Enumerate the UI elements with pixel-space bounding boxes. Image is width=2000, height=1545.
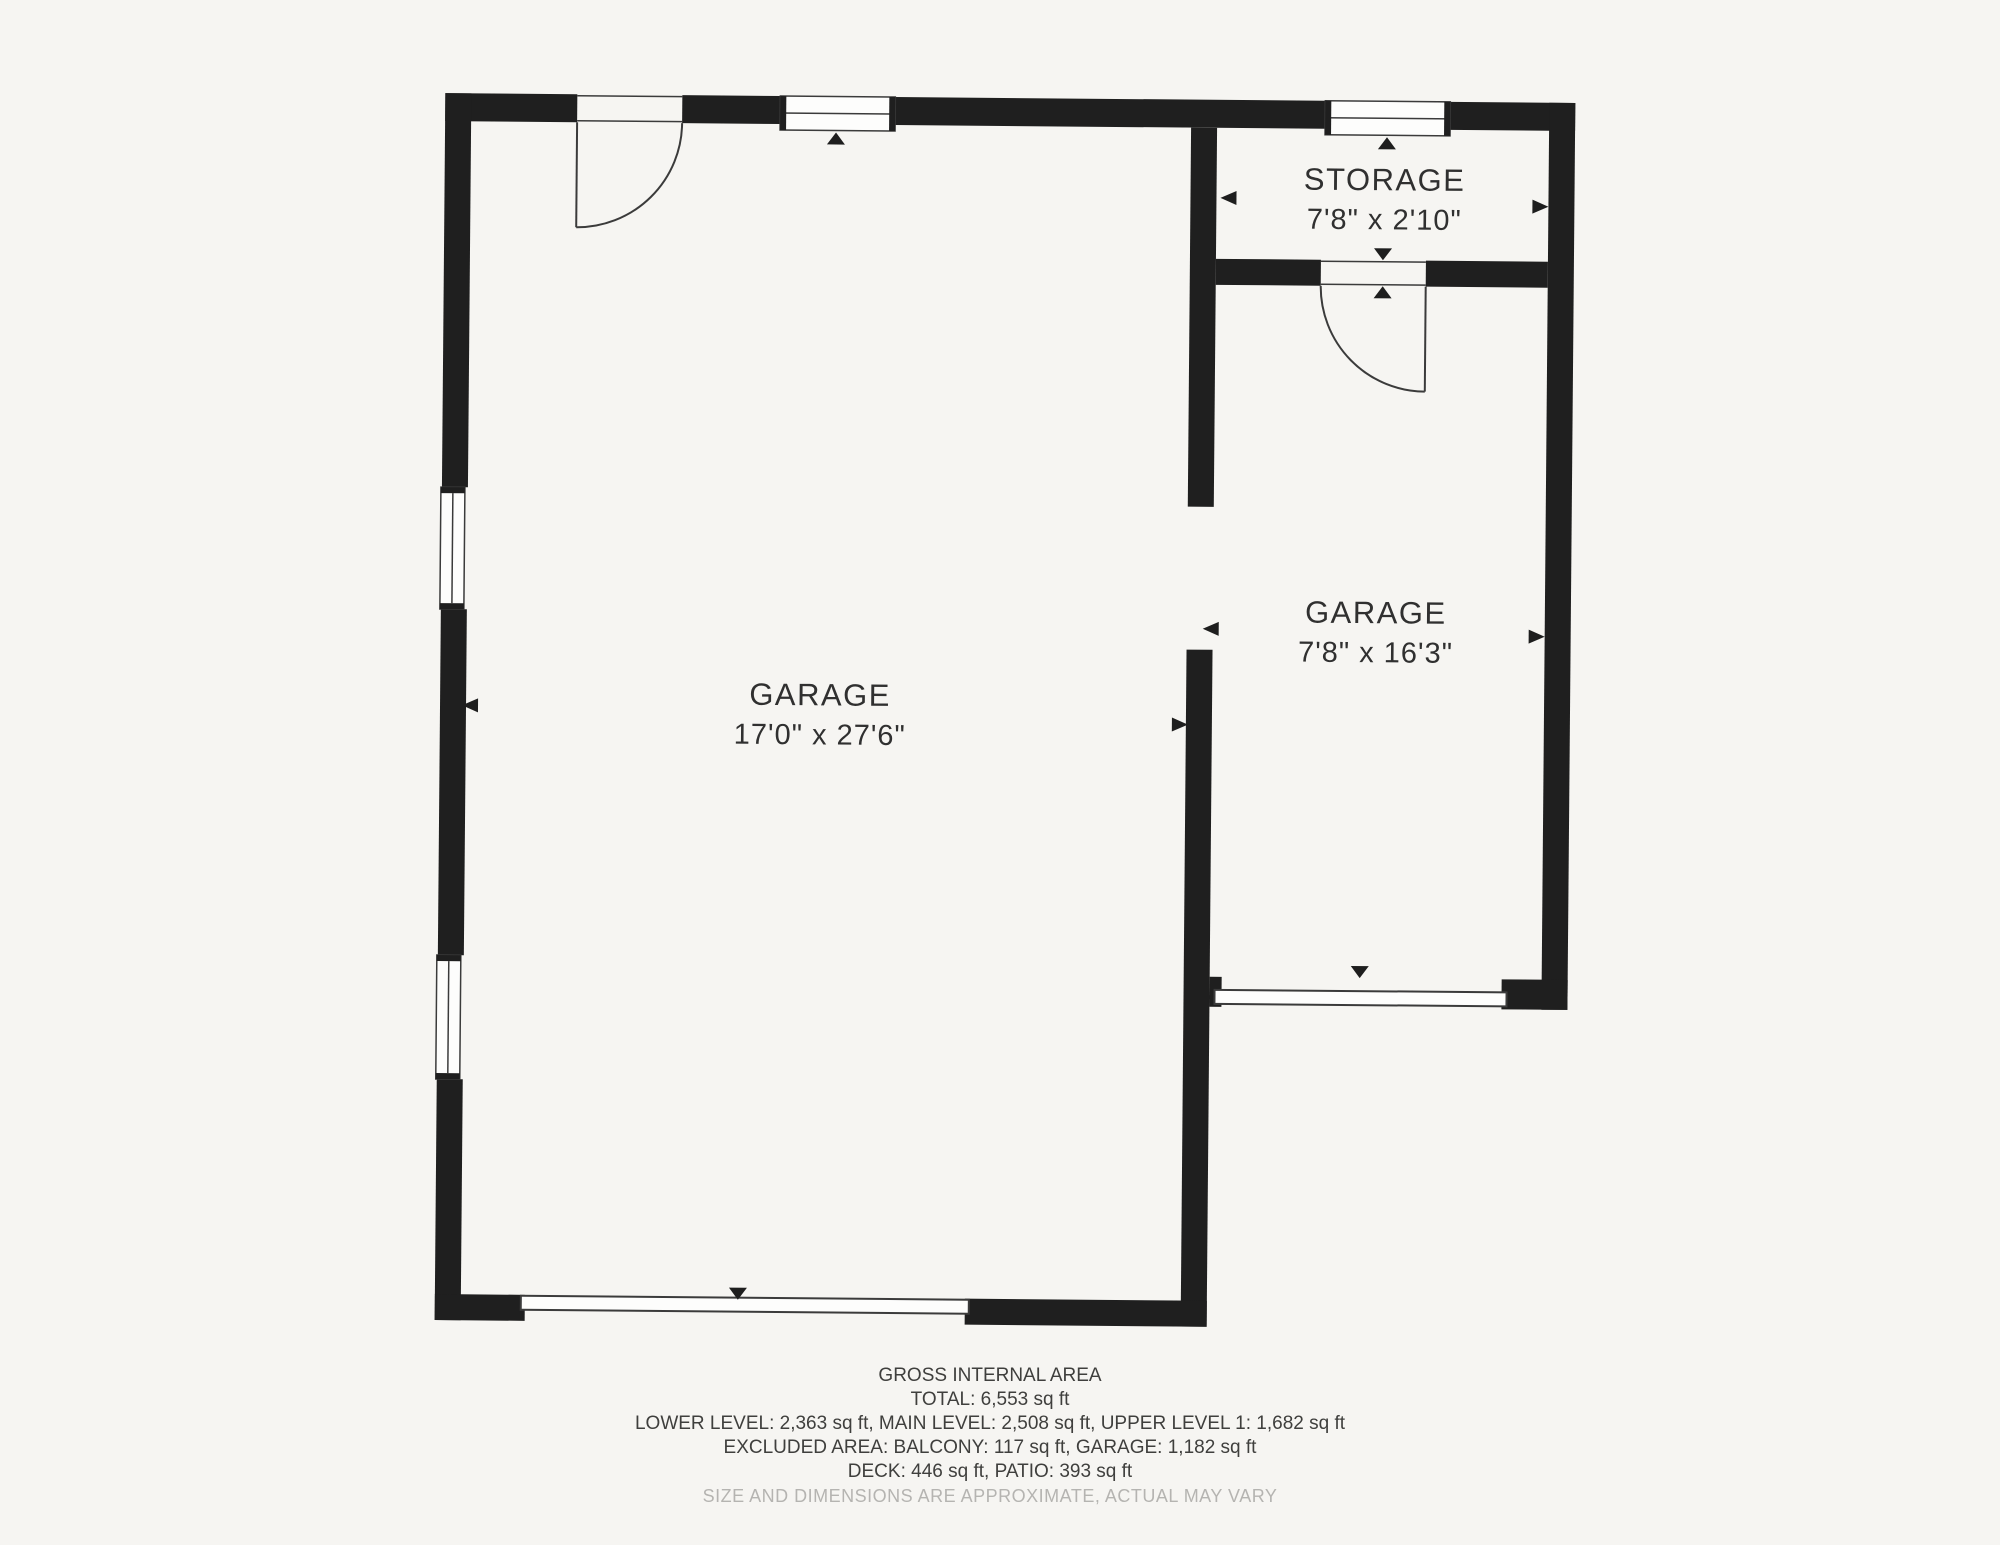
- area-deck-patio: DECK: 446 sq ft, PATIO: 393 sq ft: [635, 1460, 1345, 1484]
- arrow-up-main-window-icon: [827, 132, 845, 144]
- window-top-main: [780, 96, 895, 131]
- floorplan-drawing-area: GARAGE 17'0" x 27'6" GARAGE 7'8" x 16'3"…: [0, 0, 2000, 1545]
- window-glass-line: [780, 113, 895, 114]
- door-opening-line: [1321, 261, 1426, 262]
- door-top-left: [576, 96, 682, 228]
- wall-segment: [1426, 261, 1548, 288]
- door-swing-arc: [1320, 286, 1426, 392]
- window-left-lower: [436, 955, 461, 1079]
- arrow-right-middle-wall-icon: [1172, 717, 1188, 731]
- door-storage: [1320, 261, 1426, 391]
- arrow-right-storage-wall-icon: [1532, 200, 1548, 214]
- arrow-down-storage-door-icon: [1374, 248, 1392, 260]
- window-end-cap: [1444, 102, 1450, 136]
- wall-segment: [965, 1299, 1207, 1327]
- disclaimer-text: SIZE AND DIMENSIONS ARE APPROXIMATE, ACT…: [635, 1484, 1345, 1508]
- arrow-right-garage-wall-icon: [1529, 630, 1545, 644]
- window-end-cap: [889, 97, 895, 131]
- arrow-up-storage-window-icon: [1378, 137, 1396, 149]
- door-swing-arc: [576, 122, 682, 228]
- window-end-cap: [437, 955, 461, 961]
- wall-segment: [435, 1294, 525, 1321]
- floorplan-page: GARAGE 17'0" x 27'6" GARAGE 7'8" x 16'3"…: [0, 0, 2000, 1545]
- room-dimensions: 7'8" x 2'10": [1303, 200, 1465, 241]
- wall-segment: [1188, 128, 1217, 507]
- area-summary: GROSS INTERNAL AREA TOTAL: 6,553 sq ft L…: [635, 1364, 1345, 1508]
- arrow-up-storage-door-icon: [1374, 286, 1392, 298]
- window-end-cap: [441, 487, 465, 493]
- wall-segment: [442, 93, 471, 487]
- door-leaf: [576, 122, 577, 227]
- room-dimensions: 7'8" x 16'3": [1298, 633, 1453, 674]
- wall-segment: [435, 1079, 463, 1320]
- window-end-cap: [780, 96, 786, 130]
- window-end-cap: [436, 1073, 460, 1079]
- room-name: GARAGE: [1298, 593, 1453, 634]
- walls: [435, 93, 1576, 1330]
- door-opening-line: [577, 121, 682, 122]
- opening-markers: [457, 129, 1549, 1306]
- door-opening-line: [1321, 284, 1426, 285]
- room-name: GARAGE: [734, 675, 906, 716]
- room-name: STORAGE: [1304, 160, 1466, 201]
- arrow-left-storage-icon: [1220, 191, 1236, 205]
- garage-door-main: [521, 1296, 969, 1314]
- area-summary-title: GROSS INTERNAL AREA: [635, 1364, 1345, 1388]
- room-label-storage: STORAGE 7'8" x 2'10": [1303, 160, 1465, 241]
- wall-segment: [682, 95, 780, 124]
- window-top-storage: [1325, 101, 1450, 136]
- room-label-garage-right: GARAGE 7'8" x 16'3": [1298, 593, 1454, 674]
- wall-segment: [1501, 979, 1567, 1010]
- door-opening-line: [577, 96, 682, 97]
- room-label-garage-main: GARAGE 17'0" x 27'6": [734, 675, 907, 756]
- wall-segment: [1181, 650, 1213, 1327]
- wall-segment: [438, 609, 467, 955]
- window-left-upper: [440, 487, 465, 609]
- wall-segment: [1541, 103, 1575, 1010]
- area-excluded: EXCLUDED AREA: BALCONY: 117 sq ft, GARAG…: [635, 1436, 1345, 1460]
- window-end-cap: [440, 603, 464, 609]
- window-glass-line: [448, 961, 449, 1073]
- window-glass-line: [452, 493, 453, 603]
- door-leaf: [1425, 287, 1426, 392]
- window-end-cap: [1325, 101, 1331, 135]
- area-levels: LOWER LEVEL: 2,363 sq ft, MAIN LEVEL: 2,…: [635, 1412, 1345, 1436]
- floorplan-svg: [0, 0, 2000, 1545]
- area-total: TOTAL: 6,553 sq ft: [635, 1388, 1345, 1412]
- garage-door-right: [1214, 990, 1506, 1007]
- arrow-left-middle-opening-icon: [1203, 622, 1219, 636]
- arrow-down-right-garage-door-icon: [1351, 966, 1369, 978]
- room-dimensions: 17'0" x 27'6": [734, 715, 906, 756]
- wall-segment: [1216, 259, 1321, 286]
- wall-segment: [895, 97, 1325, 129]
